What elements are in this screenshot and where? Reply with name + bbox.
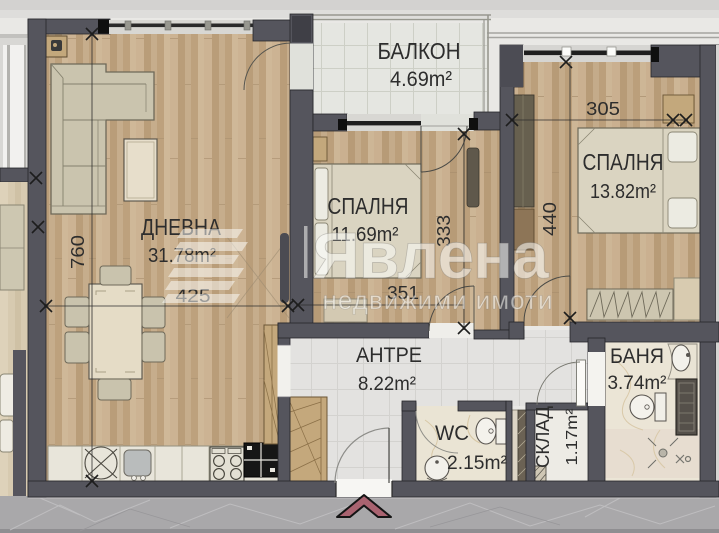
svg-text:2.15m²: 2.15m²	[447, 453, 507, 474]
svg-text:БАНЯ: БАНЯ	[610, 345, 664, 368]
svg-text:3.74m²: 3.74m²	[608, 373, 667, 394]
svg-text:305: 305	[586, 99, 620, 119]
svg-text:4.69m²: 4.69m²	[390, 68, 452, 91]
svg-text:8.22m²: 8.22m²	[358, 374, 416, 395]
svg-text:760: 760	[68, 235, 88, 269]
svg-text:13.82m²: 13.82m²	[590, 181, 656, 203]
svg-text:недвижими имоти: недвижими имоти	[322, 285, 553, 315]
svg-text:АНТРЕ: АНТРЕ	[356, 344, 422, 367]
svg-text:СПАЛНЯ: СПАЛНЯ	[328, 193, 409, 219]
svg-text:СКЛАД: СКЛАД	[533, 406, 553, 468]
svg-text:1.17m²: 1.17m²	[564, 408, 581, 466]
svg-text:СПАЛНЯ: СПАЛНЯ	[583, 149, 664, 175]
svg-text:Явлена: Явлена	[312, 218, 550, 292]
svg-text:БАЛКОН: БАЛКОН	[378, 38, 461, 64]
svg-text:WC: WC	[435, 422, 469, 445]
